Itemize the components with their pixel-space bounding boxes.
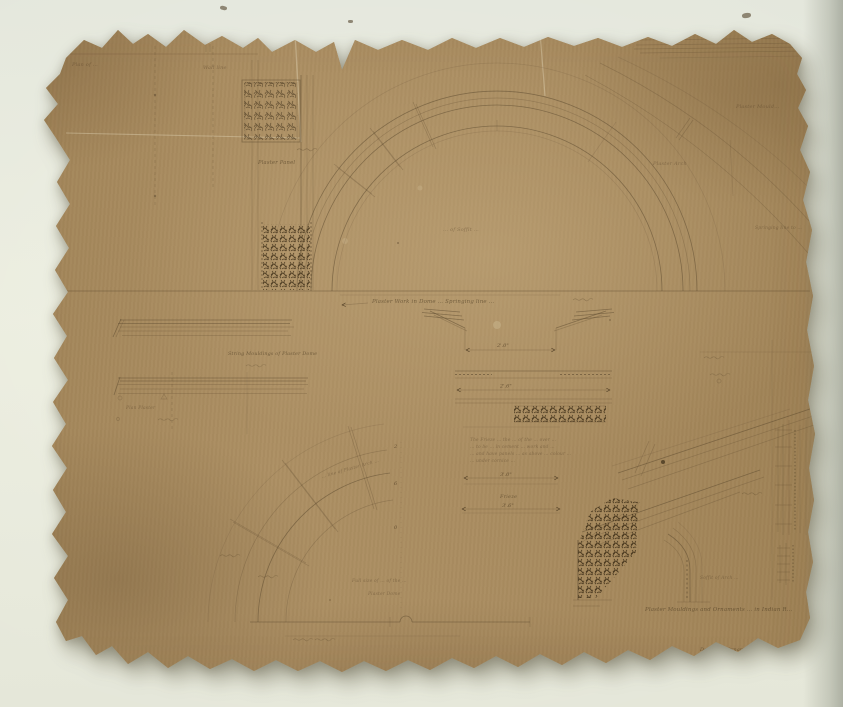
note-line: … and have panels … as above … colour …: [470, 452, 571, 457]
drawing-linework: Plan of … Wall line Plaster Panel: [0, 0, 843, 707]
note-line: … to be … in cement … work and …: [470, 445, 555, 450]
string-moulding-label: String Mouldings of Plaster Dome: [228, 351, 317, 357]
arc-note-1: Full size of … of the …: [351, 579, 407, 584]
bottom-caption: Plaster Mouldings and Ornaments … in Ind…: [644, 607, 792, 613]
jamb-plan-construction: Plan of … Wall line: [70, 44, 258, 205]
marker-6: 6: [394, 481, 398, 487]
sheet-captions: Plaster Mouldings and Ornaments … in Ind…: [644, 607, 795, 672]
credit-line-1: Details of Ornamental parts of Ch…: [699, 647, 794, 653]
drawing-sheet: Plan of … Wall line Plaster Panel: [0, 0, 843, 707]
soffit-of-arch-label: Soffit of Arch …: [700, 576, 739, 581]
springing-caption: Plaster Work in Dome … Springing line …: [371, 299, 494, 305]
marker-2: 2: [393, 444, 397, 450]
credit-line-2: and Indian patterns … Monument …: [700, 655, 795, 661]
marker-0: 0: [394, 525, 398, 531]
note-line: The Frieze … the … of the … over …: [470, 438, 556, 443]
drawing-sheet-shadow-wrap: Plan of … Wall line Plaster Panel: [0, 0, 843, 707]
springing-line: Plaster Work in Dome … Springing line … …: [66, 226, 810, 305]
door-arch-detail: Soffit of Arch …: [573, 398, 843, 606]
plaster-mould-label: Plaster Mould…: [735, 104, 779, 110]
dim-3-6: 3'.6": [502, 503, 514, 509]
credit-line-3: Calcutta: [752, 666, 773, 672]
photo-backdrop: Plan of … Wall line Plaster Panel: [0, 0, 843, 707]
plaster-arch-label: Plaster Arch: [652, 161, 687, 167]
dim-3-0: 3'.0": [500, 472, 512, 478]
arch-elevation-arcs: … of Soffit …: [269, 63, 725, 291]
wall-line-label: Wall line: [203, 65, 227, 71]
plan-plaster-label: Plan Plaster: [125, 406, 156, 411]
right-edge-profiles: [700, 340, 840, 600]
coffer-panel-section: 2'.0" 2'.6": [422, 309, 614, 427]
plaster-panel-label: Plaster Panel: [257, 160, 295, 166]
note-line: … under cornice …: [470, 459, 515, 464]
string-moulding-profile: String Mouldings of Plaster Dome: [113, 319, 317, 367]
lower-moulding-profile: Plan Plaster: [114, 372, 308, 434]
frieze-label: Frieze: [499, 494, 517, 500]
dim-2-0: 2'.0": [496, 343, 509, 349]
soffit-plan-label: … of Soffit …: [443, 227, 479, 233]
frieze-dimensions: 3'.0" Frieze 3'.6": [462, 472, 560, 513]
handwritten-note-block: The Frieze … the … of the … over … … to …: [470, 438, 571, 464]
ornament-spandrel-panel: Plaster Panel: [242, 80, 317, 166]
arc-note-2: Plaster Dome: [367, 592, 401, 597]
springing-note: Springing line to …: [755, 226, 802, 231]
plan-of-jamb-label: Plan of …: [71, 62, 98, 68]
outer-arch-corner: Plaster Mould… Plaster Arch: [585, 38, 843, 290]
paper-creases: [66, 32, 611, 601]
dim-2-6: 2'.6": [499, 384, 512, 390]
